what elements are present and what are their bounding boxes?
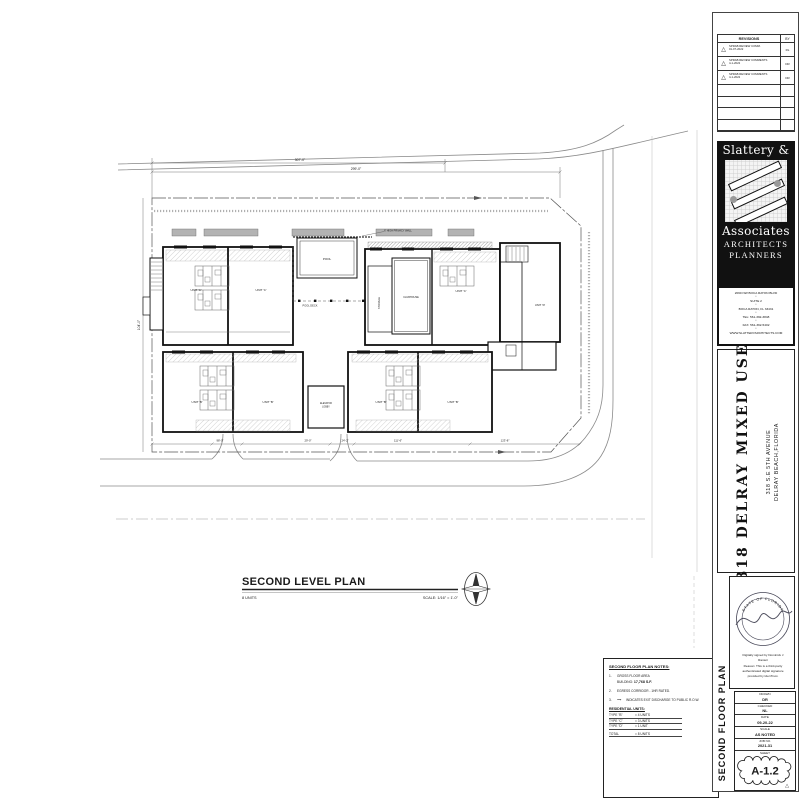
note-text: BUILDING:	[617, 680, 633, 684]
residential-units-title: RESIDENTIAL UNITS:	[609, 707, 713, 711]
revision-row: △ SPRAB REVIEW COMM. 01-07-2022 RL	[718, 43, 794, 57]
firm-name-top: Slattery &	[719, 143, 793, 158]
job-value: 2021-31	[735, 743, 795, 749]
project-address-line2: DELRAY BEACH,FLORIDA	[774, 423, 780, 501]
note-number: 1.	[609, 674, 617, 678]
scale-row: SCALE AS NOTED	[735, 727, 795, 739]
unit-label: UNIT 'B'	[448, 400, 459, 404]
project-title-block: 318 DELRAY MIXED USE 318 S.E 5TH AVENUE …	[717, 349, 795, 573]
architect-seal: STATE OF FLORIDA Digitally signed by Dom…	[730, 577, 796, 690]
building-walls	[143, 229, 560, 432]
unit-label: UNIT 'C'	[455, 289, 467, 293]
unit-label: UNIT 'B'	[192, 400, 203, 404]
sheet-number: A-1.2	[751, 766, 779, 778]
sheet-number-cloud: A-1.2	[736, 755, 794, 785]
unit-total-qty: = 8 UNITS	[635, 732, 650, 737]
revisions-header: REVISIONS	[718, 37, 780, 41]
firm-website: WWW.SLATTERYARCHITECTS.COM	[719, 331, 793, 335]
date-value: 09-20-22	[735, 720, 795, 726]
drawing-sheet: 307'-0" 299'-0" 104'-0" 98'-0" 29'-0" 24…	[0, 0, 800, 800]
note-number: 2.	[609, 689, 617, 693]
revision-delta-icon: △	[785, 783, 789, 789]
revision-date: 4-1-2022	[729, 62, 780, 65]
revision-row: △ SPRAB REVIEW COMMENTS 4-1-2022 DR	[718, 71, 794, 85]
unit-label: UNIT 'C'	[255, 288, 267, 292]
revision-date: 4-1-2022	[729, 76, 780, 79]
sheet-title-vertical: SECOND FLOOR PLAN	[717, 665, 727, 782]
elevator-lobby-label: ELEVATOR	[320, 402, 332, 405]
revision-row: △ SPRAB REVIEW COMMENTS 4-1-2022 DR	[718, 57, 794, 71]
notes-title: SECOND FLOOR PLAN NOTES:	[609, 665, 713, 669]
unit-label: UNIT 'D'	[535, 303, 546, 307]
firm-name-bottom: Associates	[719, 224, 793, 239]
revision-by: DR	[780, 57, 794, 70]
svg-text:STATE OF FLORIDA: STATE OF FLORIDA	[741, 597, 784, 612]
scale-value: AS NOTED	[735, 732, 795, 738]
revision-row-empty	[718, 120, 794, 132]
logo-dot	[730, 196, 737, 203]
firm-address: 2060 NW BOCA RATON BLVD • SUITE 2 • BOCA…	[719, 286, 793, 344]
cert-line: provided by IdenTrust.	[748, 674, 779, 678]
firm-discipline: ARCHITECTS	[719, 239, 793, 250]
title-block-strip: REVISIONS BY △ SPRAB REVIEW COMM. 01-07-…	[712, 12, 799, 792]
dim-bottom-1: 98'-0"	[216, 439, 223, 443]
north-arrow-icon	[462, 573, 490, 606]
exit-discharge-arrow-icon: ⟶	[617, 698, 626, 702]
project-address-line1: 318 S.E 5TH AVENUE	[766, 430, 772, 495]
cert-line: Reason: This is a third-party	[744, 664, 783, 668]
revision-row-empty	[718, 97, 794, 109]
revision-delta-icon: △	[718, 71, 729, 84]
drawing-title: SECOND LEVEL PLAN	[242, 576, 365, 588]
pool-deck-label: POOL DECK	[302, 304, 317, 308]
storage-label: STORAGE	[378, 297, 381, 310]
revision-row-empty	[718, 85, 794, 97]
revision-by: DR	[780, 71, 794, 84]
dim-bottom-3: 24'-2"	[341, 439, 348, 443]
dim-top-outer: 307'-0"	[295, 158, 306, 162]
unit-type: TYPE "B"	[609, 713, 635, 718]
cert-line: Ranieri	[758, 658, 768, 662]
cert-line: Digitally signed by Dominick J	[743, 653, 784, 657]
balconies	[172, 229, 474, 236]
date-row: DATE 09-20-22	[735, 715, 795, 727]
unit-label: UNIT 'B'	[263, 400, 274, 404]
unit-total: TOTAL	[609, 732, 635, 737]
dim-bottom-4: 111'-6"	[394, 439, 402, 443]
seal-arc-text: STATE OF FLORIDA	[741, 597, 784, 612]
checked-row: CHECKED NL	[735, 704, 795, 716]
drawing-title-group: SECOND LEVEL PLAN 8 UNITS SCALE: 1/16" =…	[242, 573, 490, 606]
firm-logo-art	[725, 160, 787, 222]
dim-bottom-2: 29'-0"	[304, 439, 311, 443]
note-text: EGRESS CORRIDOR - 1HR RATED.	[617, 689, 670, 693]
note-text: GROSS FLOOR AREA	[617, 674, 650, 678]
privacy-wall-note: 6' HIGH PRIVACY WALL	[384, 230, 412, 233]
architect-seal-block: STATE OF FLORIDA Digitally signed by Dom…	[729, 576, 795, 689]
drawn-value: DR	[735, 697, 795, 703]
unit-qty: = 1 UNIT	[635, 724, 648, 729]
revision-row-empty	[718, 108, 794, 120]
sheet-info-block: DRAWN DR CHECKED NL DATE 09-20-22 SCALE …	[734, 691, 796, 791]
unit-type: TYPE "D"	[609, 724, 635, 729]
elevator-lobby-label: LOBBY	[322, 407, 330, 409]
pool-label: POOL	[323, 257, 332, 261]
plan-notes-box: SECOND FLOOR PLAN NOTES: 1. GROSS FLOOR …	[603, 658, 719, 798]
unit-qty: = 3 UNITS	[635, 719, 650, 724]
dim-bottom-5: 123'-8"	[501, 439, 510, 443]
clubhouse-label: CLUBHOUSE	[403, 296, 419, 299]
revision-by: RL	[780, 43, 794, 56]
units-note: 8 UNITS	[242, 596, 257, 600]
revisions-by-header: BY	[780, 35, 794, 42]
unit-qty: = 4 UNITS	[635, 713, 650, 718]
sheet-number-cell: SHEET A-1.2 △	[735, 751, 795, 791]
logo-dot	[774, 180, 781, 187]
unit-label: UNIT 'B'	[376, 400, 387, 404]
cert-line: authenticated digital signature	[742, 669, 783, 673]
unit-label: UNIT 'C'	[190, 288, 202, 292]
job-row: JOB NO. 2021-31	[735, 739, 795, 751]
unit-type: TYPE "C"	[609, 719, 635, 724]
revision-date: 01-07-2022	[729, 48, 780, 51]
checked-value: NL	[735, 708, 795, 714]
project-title: 318 DELRAY MIXED USE	[735, 343, 751, 580]
dim-top-inner: 299'-0"	[351, 167, 362, 171]
note-text: INDICATES EXIT DISCHARGE TO PUBLIC R.O.W…	[626, 698, 699, 702]
note-number: 3.	[609, 698, 617, 702]
revision-delta-icon: △	[718, 57, 729, 70]
gross-area-value: 17,768 S.F.	[634, 680, 652, 684]
firm-discipline: PLANNERS	[719, 250, 793, 261]
firm-logo-block: Slattery & Associates ARCHITECTS PLANNER…	[717, 141, 795, 346]
revisions-table: REVISIONS BY △ SPRAB REVIEW COMM. 01-07-…	[717, 34, 795, 132]
dim-left: 104'-0"	[137, 319, 141, 330]
scale-note: SCALE: 1/16" = 1'-0"	[423, 596, 459, 600]
drawn-row: DRAWN DR	[735, 692, 795, 704]
revision-delta-icon: △	[718, 43, 729, 56]
